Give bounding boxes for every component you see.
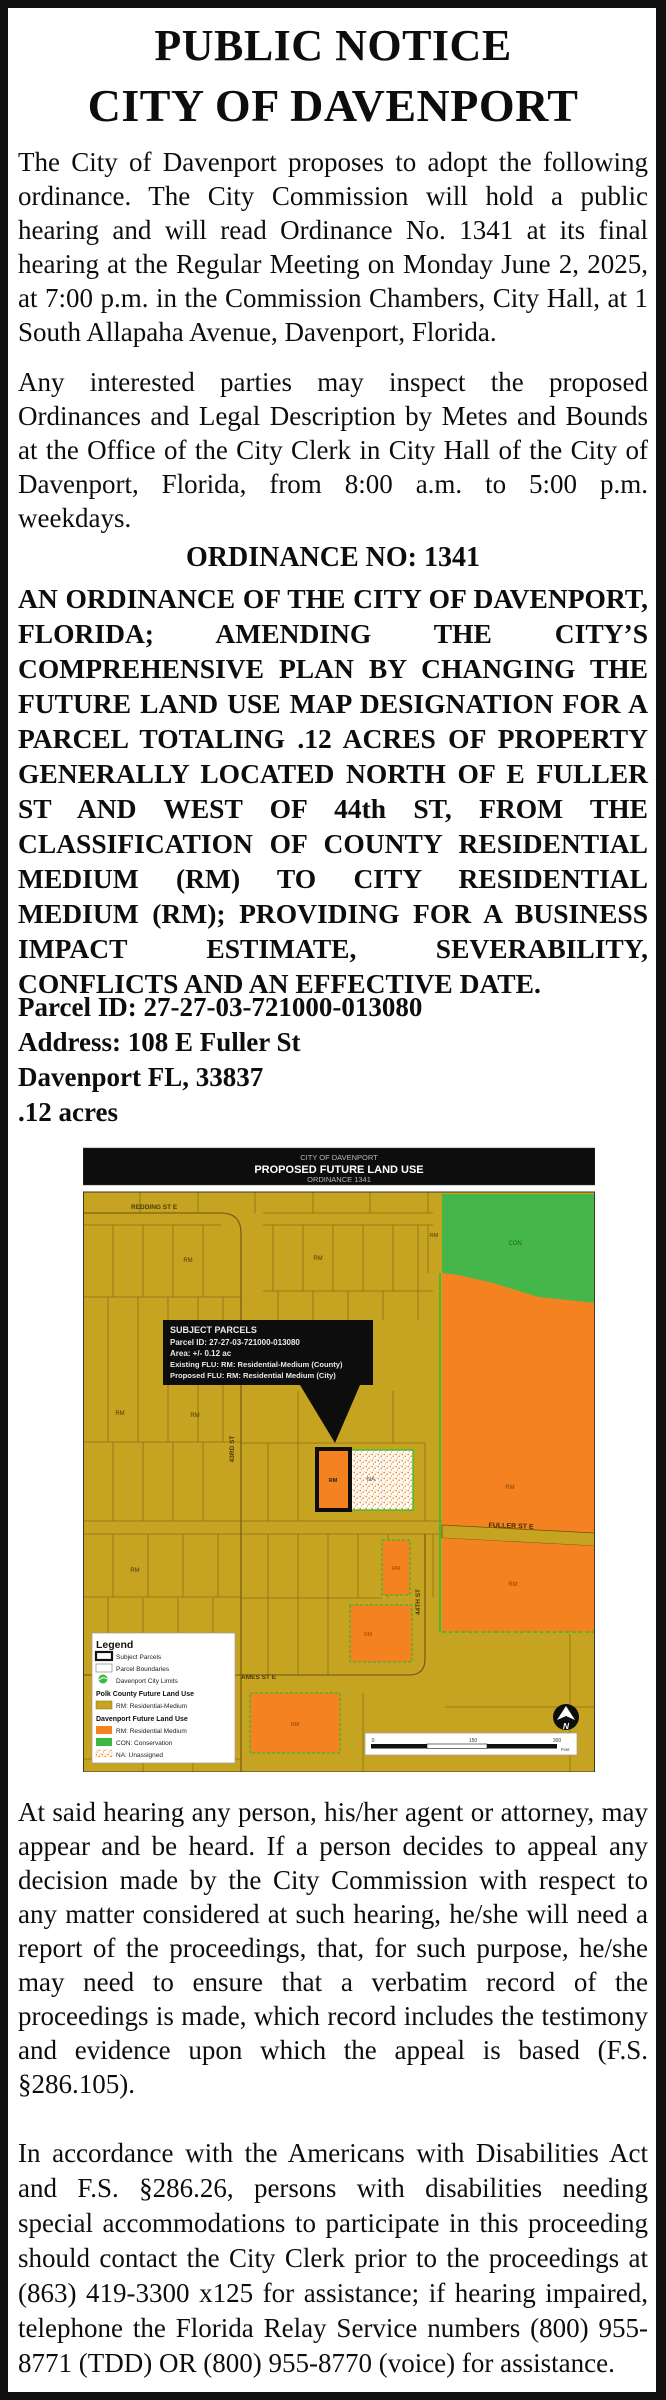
legend-subject-parcels: Subject Parcels xyxy=(116,1654,162,1661)
inspection-paragraph: Any interested parties may inspect the p… xyxy=(18,365,648,535)
map-body: SUBJECT PARCELS Parcel ID: 27-27-03-7210… xyxy=(83,1192,595,1772)
callout-proposed-flu: Proposed FLU: RM: Residential Medium (Ci… xyxy=(170,1371,336,1380)
appeal-paragraph: At said hearing any person, his/her agen… xyxy=(18,1795,648,2101)
rm-label: RM xyxy=(392,1566,400,1572)
rm-label: RM xyxy=(291,1722,300,1728)
callout-area: Area: +/- 0.12 ac xyxy=(170,1349,232,1358)
parcel-city: Davenport FL, 33837 xyxy=(18,1060,422,1095)
map-title-bar: CITY OF DAVENPORT PROPOSED FUTURE LAND U… xyxy=(83,1148,595,1185)
rm-label: RM xyxy=(505,1485,514,1491)
north-arrow-label: N xyxy=(563,1721,570,1731)
legend-conservation: CON: Conservation xyxy=(116,1740,173,1747)
legend-city-limits: Davenport City Limits xyxy=(116,1678,179,1685)
intro-paragraph: The City of Davenport proposes to adopt … xyxy=(18,145,648,349)
rm-label: RM xyxy=(430,1233,439,1239)
callout-title: SUBJECT PARCELS xyxy=(170,1325,257,1335)
rm-label: RM xyxy=(313,1256,322,1262)
callout-parcel-id: Parcel ID: 27-27-03-721000-013080 xyxy=(170,1338,300,1347)
redding-st-label: REDDING ST E xyxy=(131,1204,178,1211)
na-label: NA xyxy=(367,1477,375,1483)
city-rm-region-upper xyxy=(442,1273,595,1533)
legend-title: Legend xyxy=(96,1639,133,1651)
public-notice-page: PUBLIC NOTICE CITY OF DAVENPORT The City… xyxy=(0,0,666,2400)
parcel-info-block: Parcel ID: 27-27-03-721000-013080 Addres… xyxy=(18,990,422,1130)
ames-st-label: AMES ST E xyxy=(241,1674,277,1681)
rm-label: RM xyxy=(508,1582,517,1588)
rm-label: RM xyxy=(364,1632,372,1638)
map-svg: CITY OF DAVENPORT PROPOSED FUTURE LAND U… xyxy=(83,1147,595,1772)
map-legend: Legend Subject Parcels Parcel Boundaries… xyxy=(92,1633,235,1763)
44th-st-label: 44TH ST xyxy=(415,1589,422,1615)
parcel-boundaries-swatch xyxy=(96,1664,112,1672)
conservation-swatch xyxy=(96,1738,112,1746)
legend-county-rm: RM: Residential-Medium xyxy=(116,1703,187,1710)
unassigned-swatch xyxy=(96,1750,112,1757)
rm-label: RM xyxy=(190,1413,199,1419)
scale-bar: 0 150 300 Feet xyxy=(365,1733,577,1755)
ada-paragraph: In accordance with the Americans with Di… xyxy=(18,2136,648,2381)
subject-parcels-swatch xyxy=(96,1652,112,1660)
city-rm-swatch xyxy=(96,1726,112,1734)
parcel-address: Address: 108 E Fuller St xyxy=(18,1025,422,1060)
notice-title-line2: CITY OF DAVENPORT xyxy=(0,78,666,134)
notice-title-line1: PUBLIC NOTICE xyxy=(0,20,666,72)
callout-existing-flu: Existing FLU: RM: Residential-Medium (Co… xyxy=(170,1360,343,1369)
parcel-acreage: .12 acres xyxy=(18,1095,422,1130)
legend-unassigned: NA: Unassigned xyxy=(116,1752,163,1759)
county-rm-swatch xyxy=(96,1701,112,1709)
map-title-city: CITY OF DAVENPORT xyxy=(300,1153,378,1162)
ordinance-body: AN ORDINANCE OF THE CITY OF DAVENPORT, F… xyxy=(18,581,648,1001)
legend-city-heading: Davenport Future Land Use xyxy=(96,1716,188,1723)
city-rm-parcel-b xyxy=(350,1605,412,1662)
con-label: CON xyxy=(508,1241,521,1247)
parcel-id: Parcel ID: 27-27-03-721000-013080 xyxy=(18,990,422,1025)
legend-city-rm: RM: Residential Medium xyxy=(116,1728,187,1735)
map-title-ordinance: ORDINANCE 1341 xyxy=(307,1175,371,1184)
scale-mid: 150 xyxy=(469,1738,478,1744)
legend-parcel-boundaries: Parcel Boundaries xyxy=(116,1666,170,1673)
land-use-map: CITY OF DAVENPORT PROPOSED FUTURE LAND U… xyxy=(83,1147,595,1772)
43rd-st-label: 43RD ST xyxy=(229,1436,236,1463)
rm-label: RM xyxy=(183,1258,192,1264)
legend-county-heading: Polk County Future Land Use xyxy=(96,1691,194,1698)
scale-start: 0 xyxy=(372,1738,375,1744)
rm-label: RM xyxy=(130,1568,139,1574)
scale-end: 300 xyxy=(553,1738,562,1744)
ordinance-heading: ORDINANCE NO: 1341 xyxy=(0,542,666,574)
city-rm-region-lower xyxy=(442,1538,595,1632)
subject-rm-label: RM xyxy=(329,1478,338,1484)
rm-label: RM xyxy=(115,1411,124,1417)
scale-unit: Feet xyxy=(561,1747,570,1752)
